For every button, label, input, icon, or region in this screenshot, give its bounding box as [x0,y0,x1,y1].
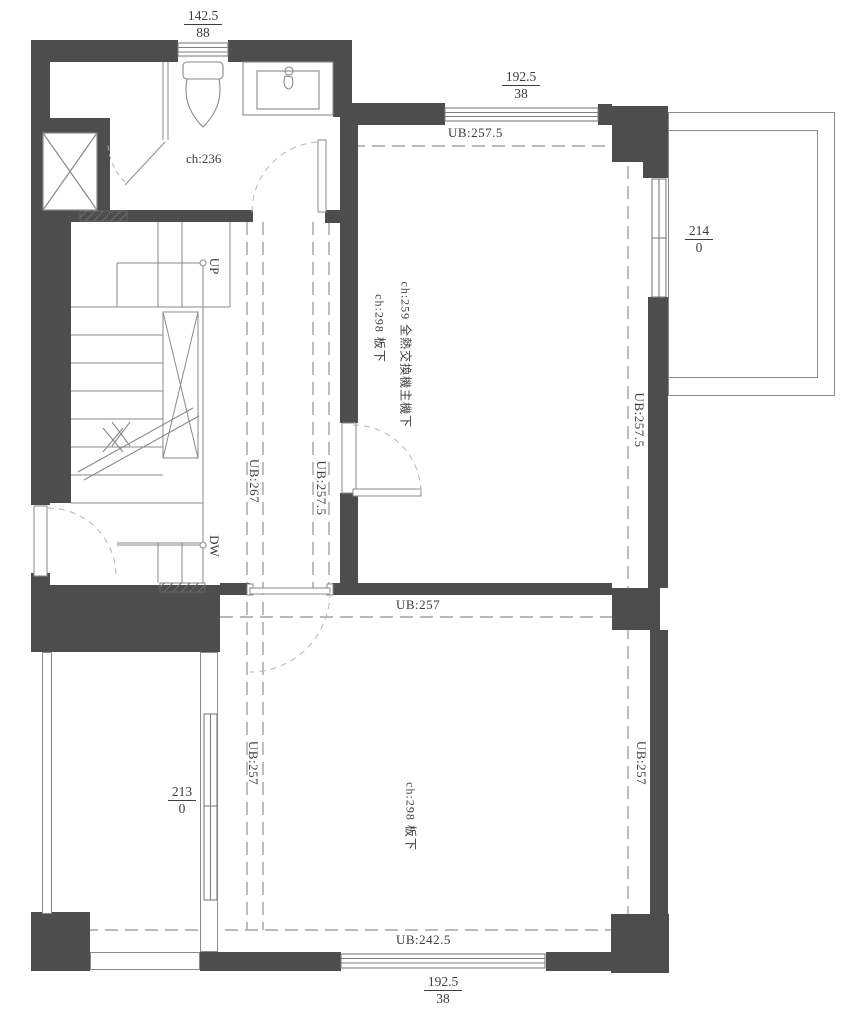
dim-left-bottom: 213 0 [163,785,201,816]
dim-right-sub: 0 [696,240,703,255]
window-top [178,43,228,56]
window-right [652,179,666,297]
door-mech-room [342,423,421,496]
label-stair-up: UP [206,254,222,278]
ub-bottom-right: UB:257 [633,735,649,791]
door-bathroom [252,140,326,212]
label-stair-down: DW [206,532,222,560]
door-lower-room [247,584,333,672]
ub-top: UB:257.5 [448,125,503,141]
window-top-right [445,108,598,121]
dim-right: 214 0 [680,224,718,255]
dim-top-right: 192.5 38 [494,70,548,101]
vent-hatch-mid [160,583,205,592]
dim-top-sub: 88 [196,25,210,40]
floor-plan-canvas: 142.5 88 192.5 38 214 0 213 0 192.5 38 U… [0,0,860,1024]
window-interior-left [204,714,217,900]
dim-top: 142.5 88 [176,9,230,40]
dim-bottom-value: 192.5 [424,975,462,991]
window-bottom [341,954,545,968]
door-shower [108,62,168,185]
ub-hall-left: UB:267 [246,451,262,511]
label-mech-room-line2: ch:298 板下 [372,293,389,365]
label-bathroom-height: ch:236 [186,151,221,167]
ub-bottom: UB:242.5 [396,932,451,948]
vent-hatch-bathroom [80,211,127,221]
door-entry [34,506,116,576]
stair-up-leader [117,260,206,307]
dim-top-right-value: 192.5 [502,70,540,86]
label-mech-room-line1: ch:259 全熱交換機主機下 [398,282,415,422]
dim-top-right-sub: 38 [514,86,528,101]
dim-bottom-sub: 38 [436,991,450,1006]
label-lower-room-height: ch:298 板下 [403,781,420,853]
dim-bottom: 192.5 38 [416,975,470,1006]
ub-bottom-left: UB:257 [245,735,261,791]
ub-right-upper: UB:257.5 [631,387,647,453]
sink [243,62,333,115]
dim-left-bottom-sub: 0 [179,801,186,816]
toilet [183,62,223,127]
ub-middle: UB:257 [396,597,440,613]
ub-hall-right: UB:257.5 [313,455,329,521]
dim-right-value: 214 [685,224,713,240]
plan-linework [0,0,860,1024]
elevator-x [43,133,97,210]
dim-top-value: 142.5 [184,9,222,25]
dim-left-bottom-value: 213 [168,785,196,801]
